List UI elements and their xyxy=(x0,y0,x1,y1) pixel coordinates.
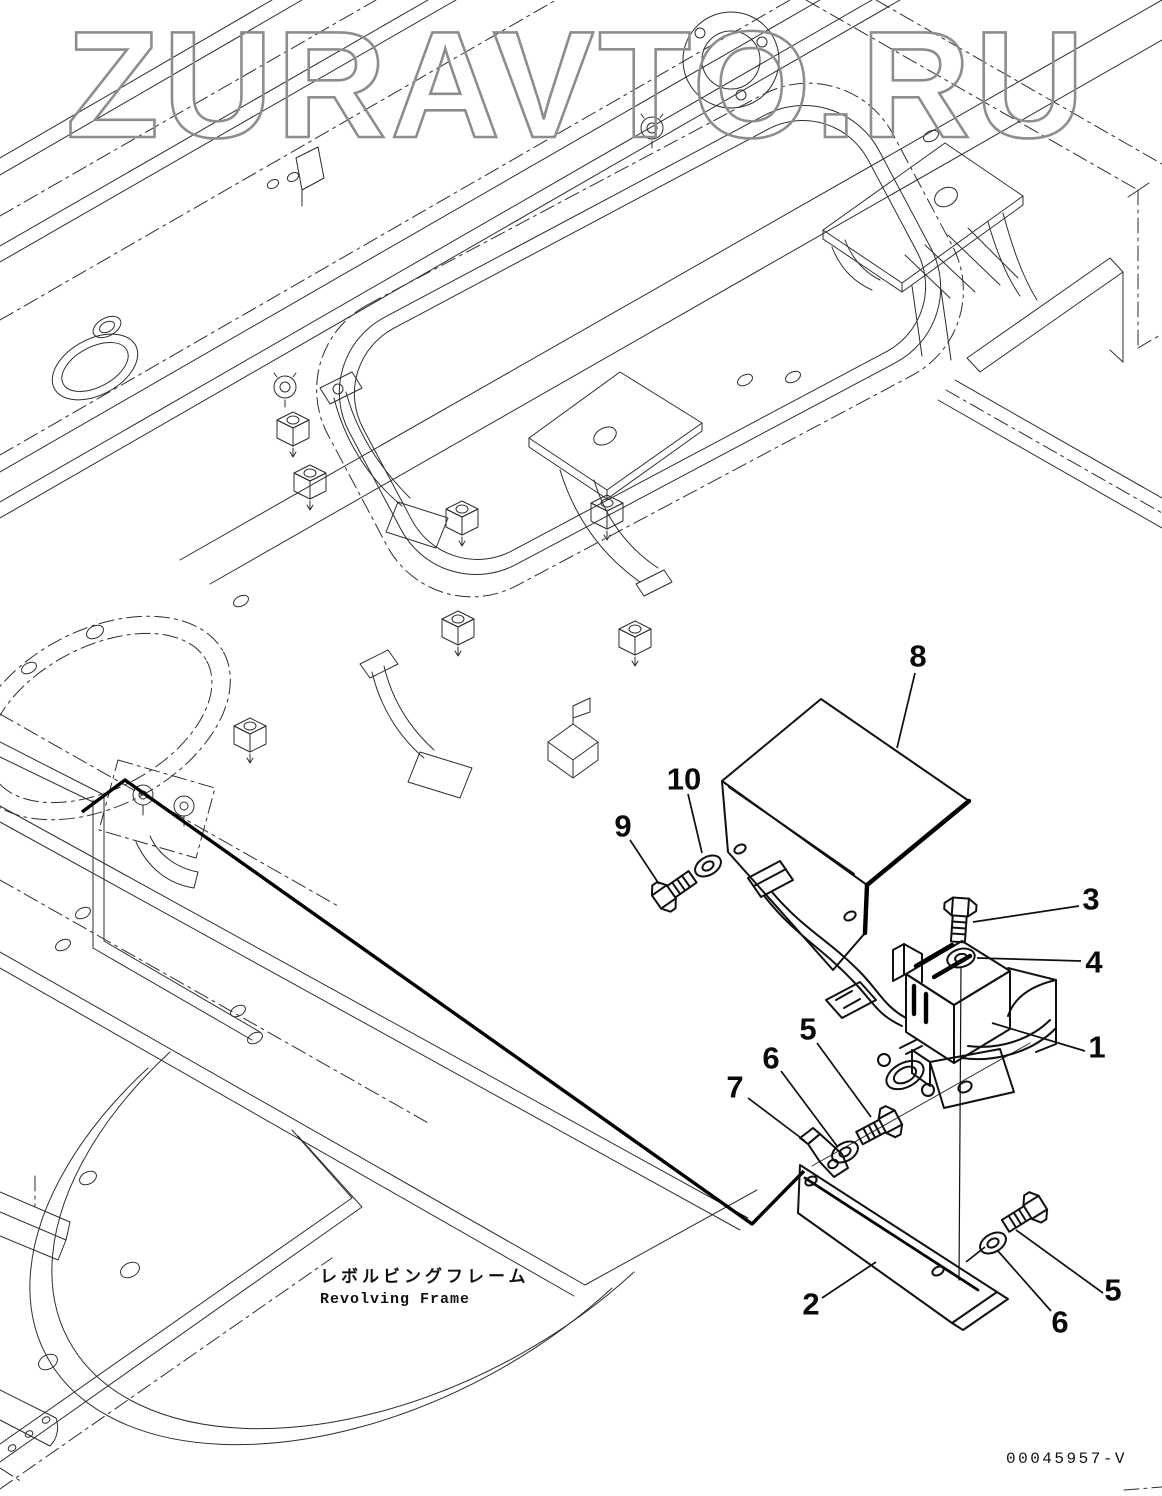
location-leader xyxy=(82,780,804,1224)
diagram-page: ZURAVTO.RU 8109341567256 レボルビングフレーム Revo… xyxy=(0,0,1162,1496)
callout-2: 2 xyxy=(802,1289,819,1320)
watermark-text: ZURAVTO.RU xyxy=(66,0,1088,170)
caption-english: Revolving Frame xyxy=(320,1291,530,1308)
callout-5: 5 xyxy=(1104,1275,1121,1306)
callout-10: 10 xyxy=(667,764,701,795)
callout-7: 7 xyxy=(726,1072,743,1103)
callout-4: 4 xyxy=(1085,947,1102,978)
part-8-cover xyxy=(722,699,969,970)
callout-5: 5 xyxy=(799,1014,816,1045)
callout-6: 6 xyxy=(762,1043,779,1074)
part-10-washer xyxy=(691,851,724,881)
callout-1: 1 xyxy=(1088,1032,1105,1063)
figure-caption: レボルビングフレーム Revolving Frame xyxy=(320,1262,530,1308)
part-3-bolt xyxy=(942,897,977,943)
revolving-frame-artwork xyxy=(0,0,1162,1490)
part-6-washer-lower xyxy=(976,1228,1009,1258)
drawing-number: 00045957-V xyxy=(1006,1450,1127,1468)
part-5-bolt-lower xyxy=(997,1189,1051,1239)
exploded-view xyxy=(82,673,1103,1330)
diagram-canvas: ZURAVTO.RU xyxy=(0,0,1162,1496)
callout-6: 6 xyxy=(1051,1307,1068,1338)
part-9-bolt xyxy=(647,864,701,915)
part-2-plate xyxy=(798,1165,1008,1330)
callout-3: 3 xyxy=(1082,884,1099,915)
callout-9: 9 xyxy=(614,811,631,842)
caption-japanese: レボルビングフレーム xyxy=(320,1262,530,1287)
callout-8: 8 xyxy=(909,641,926,672)
